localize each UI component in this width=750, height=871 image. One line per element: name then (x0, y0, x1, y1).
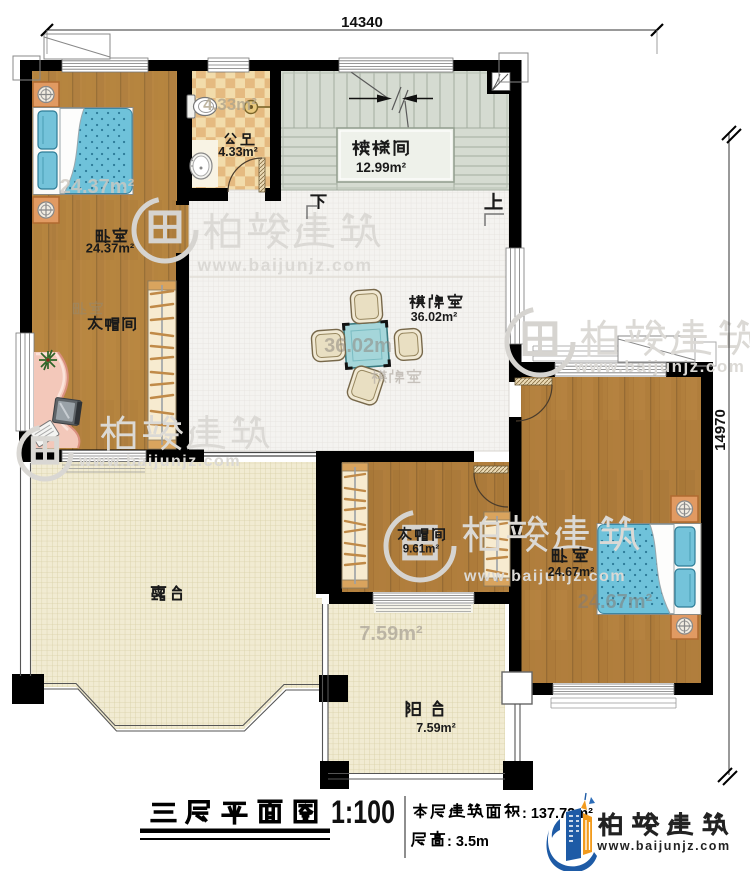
svg-text:www.baijunjz.com: www.baijunjz.com (78, 453, 241, 470)
svg-text:www.baijunjz.com: www.baijunjz.com (463, 568, 626, 585)
svg-text:24.67m²: 24.67m² (578, 591, 653, 613)
svg-text:1:100: 1:100 (331, 794, 395, 830)
svg-text:14970: 14970 (712, 409, 729, 451)
svg-text:4.33m²: 4.33m² (218, 145, 258, 159)
svg-text:www.baijunjz.com: www.baijunjz.com (196, 255, 372, 275)
svg-text:: 3.5m: : 3.5m (447, 834, 489, 850)
svg-text:4.33m²: 4.33m² (203, 95, 257, 114)
svg-text:24.67m²: 24.67m² (548, 565, 595, 579)
svg-text:24.37m²: 24.37m² (86, 241, 135, 256)
svg-text:7.59m²: 7.59m² (416, 721, 456, 735)
svg-text:36.02m: 36.02m (324, 335, 392, 357)
svg-text:www.baijunjz.com: www.baijunjz.com (596, 839, 730, 853)
svg-text:www.baijunjz.com: www.baijunjz.com (574, 357, 746, 376)
svg-text:14340: 14340 (341, 14, 383, 31)
svg-text:24.37m²: 24.37m² (60, 176, 135, 198)
svg-text:9.61m²: 9.61m² (403, 544, 440, 556)
svg-text:7.59m²: 7.59m² (359, 623, 423, 645)
svg-text:12.99m²: 12.99m² (356, 160, 407, 175)
svg-text:36.02m²: 36.02m² (411, 310, 458, 324)
